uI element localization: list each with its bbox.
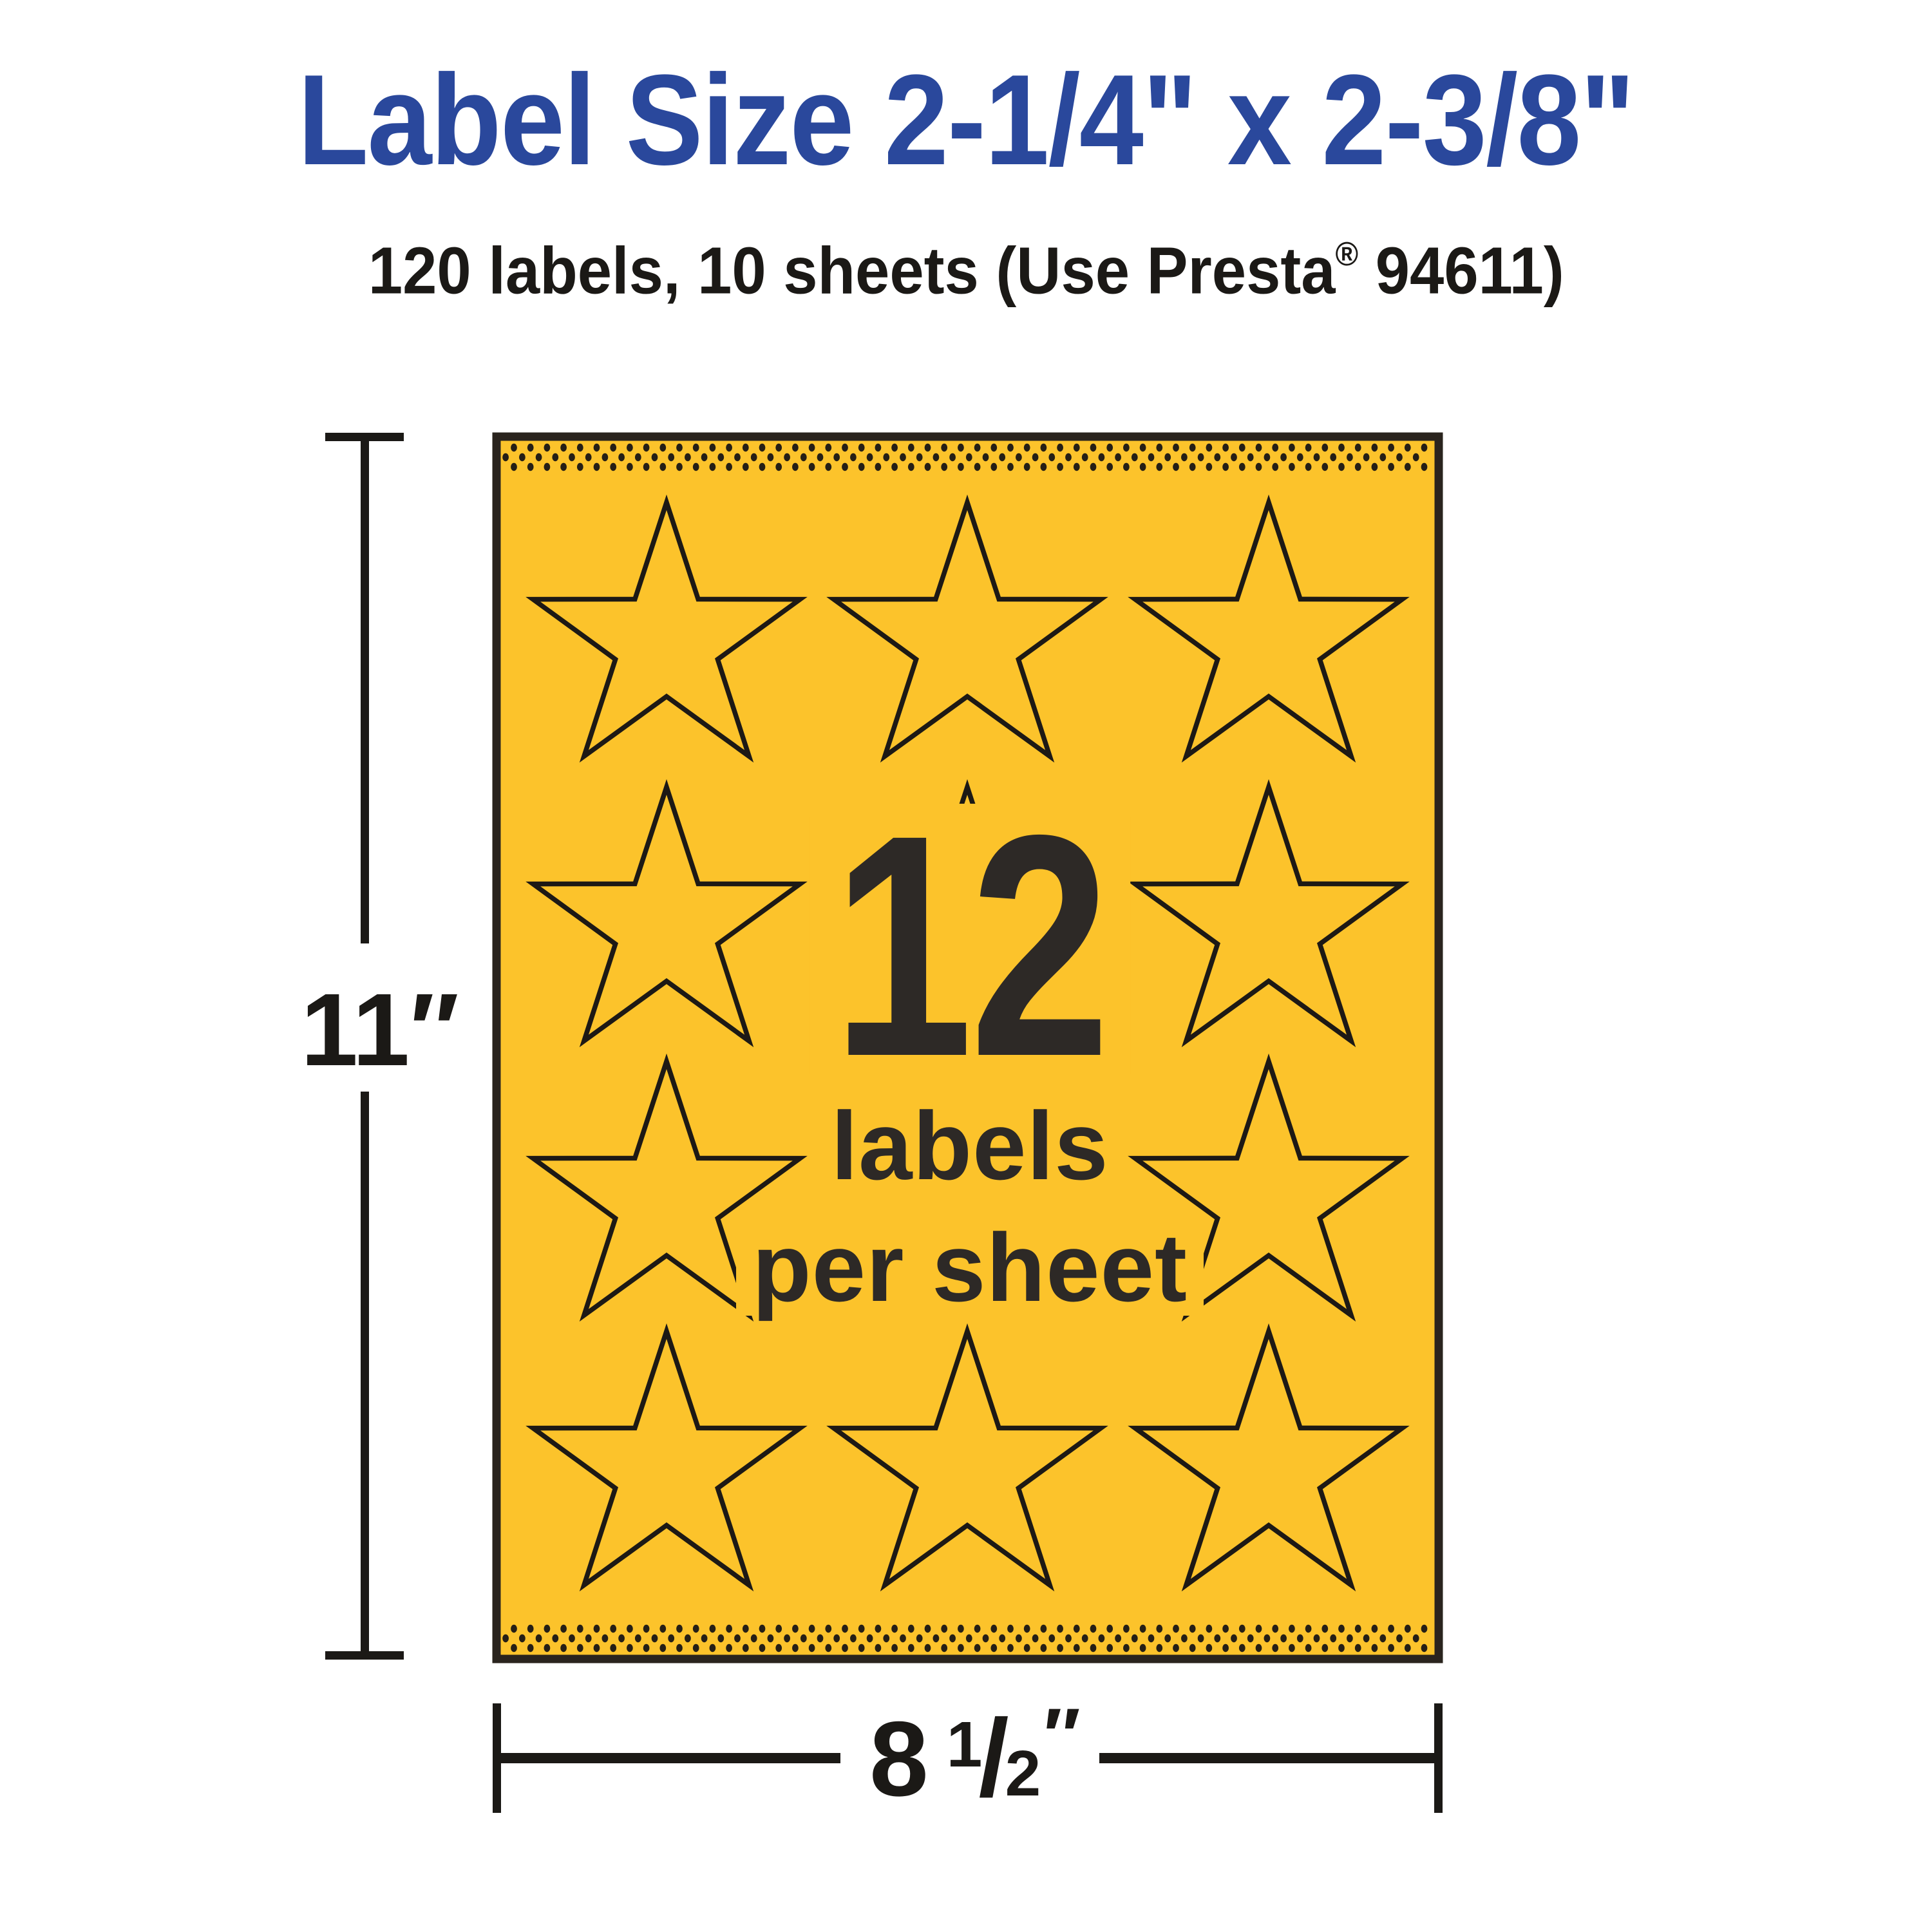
perforation-dot <box>825 444 831 451</box>
perforation-dot <box>1065 453 1072 461</box>
perforation-dot <box>602 453 609 461</box>
perforation-dot <box>800 453 807 461</box>
perforation-dot <box>569 453 575 461</box>
perforation-dot <box>693 463 699 471</box>
perforation-dot <box>743 463 749 471</box>
perforation-dot <box>726 1625 732 1633</box>
perforation-dot <box>1164 453 1171 461</box>
perforation-dot <box>693 1644 699 1652</box>
perforation-dot <box>659 444 666 451</box>
perforation-dot <box>858 1644 865 1652</box>
perforation-dot <box>1421 463 1428 471</box>
perforation-dot <box>1297 453 1303 461</box>
perforation-dot <box>1206 1644 1213 1652</box>
perforation-dot <box>751 1634 757 1642</box>
perforation-dot <box>1355 463 1361 471</box>
perforation-dot <box>1048 1634 1055 1642</box>
perforation-dot <box>635 1634 641 1642</box>
perforation-dot <box>1222 444 1229 451</box>
perforation-dot <box>833 453 840 461</box>
perforation-dot <box>659 1625 666 1633</box>
perforation-dot <box>1198 453 1204 461</box>
perforation-dot <box>1090 1644 1097 1652</box>
perforation-dot <box>759 1644 766 1652</box>
perforation-dot <box>1321 1644 1328 1652</box>
perforation-dot <box>759 463 766 471</box>
perforation-dot <box>817 1634 824 1642</box>
perforation-dot <box>676 1625 683 1633</box>
perforation-dot <box>1140 1644 1146 1652</box>
width-dimension-label: 81/2″ <box>869 1710 1081 1822</box>
perforation-dot <box>1231 1634 1237 1642</box>
perforation-dot <box>974 444 981 451</box>
width-dimension-line-right <box>1099 1753 1439 1763</box>
perforation-dot <box>1164 1634 1171 1642</box>
perforation-dot <box>1305 1644 1312 1652</box>
perforation-dot <box>552 453 558 461</box>
perforation-dot <box>1007 1625 1014 1633</box>
perforation-dot <box>1074 444 1080 451</box>
perforation-dot <box>1123 1625 1130 1633</box>
perforation-dot <box>717 1634 724 1642</box>
perforation-dot <box>1247 1634 1254 1642</box>
perforation-dot <box>544 444 551 451</box>
perforation-dot <box>1024 463 1030 471</box>
perforation-dot <box>908 1625 914 1633</box>
perforation-dot <box>710 1625 716 1633</box>
perforation-dot <box>1372 444 1378 451</box>
perforation-dot <box>1388 463 1394 471</box>
width-fraction-numerator: 1 <box>947 1709 983 1781</box>
perforation-dot <box>1156 1625 1162 1633</box>
perforation-dot <box>1222 1625 1229 1633</box>
perforation-dot <box>1379 1634 1386 1642</box>
product-diagram: Label Size 2-1/4" x 2-3/8" 120 labels, 1… <box>0 0 1932 1932</box>
perforation-dot <box>552 1634 558 1642</box>
width-dimension-right-cap <box>1434 1703 1443 1813</box>
perforation-dot <box>585 453 592 461</box>
perforation-dot <box>569 1634 575 1642</box>
labels-per-sheet-count: 12 <box>810 817 1130 1074</box>
height-dimension-bottom-cap <box>325 1651 404 1660</box>
perforation-dot <box>544 1625 551 1633</box>
perforation-dot <box>1379 453 1386 461</box>
perforation-dot <box>560 444 567 451</box>
perforation-dot <box>1007 1644 1014 1652</box>
perforation-dot <box>610 463 616 471</box>
perforation-dot <box>1305 1625 1312 1633</box>
perforation-dot <box>1181 1634 1188 1642</box>
perforation-dot <box>792 1644 799 1652</box>
perforation-dot <box>1256 444 1262 451</box>
height-dimension-line-lower <box>361 1092 369 1659</box>
perforation-dot <box>1106 1625 1113 1633</box>
perforation-dot <box>610 444 616 451</box>
perforation-dot <box>1305 463 1312 471</box>
perforation-dot <box>1321 444 1328 451</box>
perforation-dot <box>1123 463 1130 471</box>
perforation-dot <box>594 1625 600 1633</box>
perforation-dot <box>825 1644 831 1652</box>
perforation-dot <box>1189 1625 1196 1633</box>
perforation-dot <box>1421 1625 1428 1633</box>
per-sheet-words: per sheet <box>736 1219 1204 1316</box>
perforation-dot <box>1355 1625 1361 1633</box>
perforation-dot <box>643 1644 650 1652</box>
perforation-dot <box>710 444 716 451</box>
perforation-dot <box>759 444 766 451</box>
perforation-dot <box>1347 1634 1353 1642</box>
perforation-dot <box>958 444 964 451</box>
perforation-dot <box>1106 463 1113 471</box>
perforation-dot <box>1421 444 1428 451</box>
perforation-dot <box>792 444 799 451</box>
perforation-dot <box>1264 1634 1271 1642</box>
perforation-dot <box>1289 444 1295 451</box>
perforation-dot <box>867 1634 873 1642</box>
perforation-dot <box>775 444 782 451</box>
labels-word: labels <box>815 1097 1124 1194</box>
perforation-dot <box>1396 1634 1403 1642</box>
perforation-dot <box>833 1634 840 1642</box>
perforation-dot <box>908 1644 914 1652</box>
perforation-dot <box>1090 463 1097 471</box>
perforation-dot <box>1156 444 1162 451</box>
perforation-dot <box>1372 1625 1378 1633</box>
perforation-dot <box>734 453 741 461</box>
perforation-dot <box>1173 1644 1179 1652</box>
perforation-dot <box>1396 453 1403 461</box>
perforation-dot <box>974 463 981 471</box>
perforation-dot <box>1314 1634 1320 1642</box>
width-inch-mark: ″ <box>1043 1692 1080 1779</box>
perforation-dot <box>602 1634 609 1642</box>
perforation-dot <box>1388 1644 1394 1652</box>
perforation-dot <box>809 1625 815 1633</box>
perforation-dot <box>817 453 824 461</box>
perforation-dot <box>701 453 708 461</box>
perforation-dot <box>1041 444 1047 451</box>
perforation-dot <box>1347 453 1353 461</box>
perforation-dot <box>809 463 815 471</box>
perforation-dot <box>527 463 534 471</box>
perforation-dot <box>883 1634 889 1642</box>
perforation-dot <box>511 1625 517 1633</box>
perforation-dot <box>925 1644 931 1652</box>
perforation-dot <box>693 1625 699 1633</box>
perforation-dot <box>1181 453 1188 461</box>
perforation-dot <box>536 453 542 461</box>
perforation-dot <box>784 1634 790 1642</box>
perforation-dot <box>842 1644 848 1652</box>
perforation-dot <box>519 453 526 461</box>
perforation-dot <box>775 1625 782 1633</box>
perforation-dot <box>1413 1634 1419 1642</box>
perforation-dot <box>974 1644 981 1652</box>
perforation-dot <box>1041 1644 1047 1652</box>
perforation-dot <box>974 1625 981 1633</box>
perforation-dot <box>1007 444 1014 451</box>
perforation-dot <box>1189 1644 1196 1652</box>
perforation-dot <box>784 453 790 461</box>
perforation-dot <box>941 1625 947 1633</box>
perforation-dot <box>527 444 534 451</box>
perforation-dot <box>577 463 583 471</box>
perforation-dot <box>858 1625 865 1633</box>
perforation-dot <box>726 444 732 451</box>
perforation-dot <box>519 1634 526 1642</box>
perforation-dot <box>652 1634 658 1642</box>
perforation-dot <box>1189 444 1196 451</box>
perforation-dot <box>1115 1634 1121 1642</box>
perforation-dot <box>743 444 749 451</box>
perforation-dot <box>825 1625 831 1633</box>
perforation-dot <box>966 1634 972 1642</box>
perforation-dot <box>743 1644 749 1652</box>
perforation-dot <box>1115 453 1121 461</box>
perforation-dot <box>875 444 882 451</box>
perforation-dot <box>734 1634 741 1642</box>
perforation-dot <box>618 1634 625 1642</box>
perforation-dot <box>1057 444 1063 451</box>
perforation-dot <box>610 1625 616 1633</box>
perforation-dot <box>1289 463 1295 471</box>
perforation-dot <box>999 453 1005 461</box>
perforation-dot <box>1082 453 1088 461</box>
perforation-dot <box>891 1625 898 1633</box>
perforation-dot <box>1074 1625 1080 1633</box>
perforation-dot <box>958 463 964 471</box>
perforation-dot <box>1057 463 1063 471</box>
perforation-dot <box>560 1625 567 1633</box>
perforation-dot <box>1231 453 1237 461</box>
perforation-dot <box>594 463 600 471</box>
perforation-dot <box>1099 1634 1105 1642</box>
perforation-dot <box>983 1634 989 1642</box>
perforation-dot <box>1239 1625 1245 1633</box>
perforation-dot <box>1041 463 1047 471</box>
perforation-dot <box>1148 453 1155 461</box>
perforation-dot <box>1272 1625 1278 1633</box>
perforation-dot <box>1256 463 1262 471</box>
perforation-dot <box>891 444 898 451</box>
perforation-dot <box>1099 453 1105 461</box>
perforation-dot <box>768 1634 774 1642</box>
perforation-dot <box>891 1644 898 1652</box>
perforation-dot <box>627 1644 633 1652</box>
perforation-dot <box>1024 1644 1030 1652</box>
perforation-dot <box>1173 463 1179 471</box>
perforation-dot <box>875 463 882 471</box>
perforation-dot <box>1032 1634 1039 1642</box>
perforation-dot <box>1024 1625 1030 1633</box>
perforation-dot <box>1140 463 1146 471</box>
perforation-dot <box>585 1634 592 1642</box>
perforation-dot <box>1016 453 1022 461</box>
perforation-dot <box>916 1634 923 1642</box>
perforation-dot <box>1330 1634 1336 1642</box>
perforation-dot <box>900 1634 906 1642</box>
perforation-dot <box>1140 1625 1146 1633</box>
perforation-dot <box>1057 1625 1063 1633</box>
perforation-dot <box>544 463 551 471</box>
perforation-dot <box>883 453 889 461</box>
perforation-dot <box>1363 1634 1370 1642</box>
perforation-dot <box>1123 1644 1130 1652</box>
perforation-dot <box>1173 1625 1179 1633</box>
perforation-dot <box>1413 453 1419 461</box>
perforation-dot <box>850 1634 857 1642</box>
perforation-dot <box>1330 453 1336 461</box>
perforation-dot <box>560 463 567 471</box>
perforation-dot <box>1338 444 1345 451</box>
perforation-dot <box>659 1644 666 1652</box>
perforation-dot <box>610 1644 616 1652</box>
perforation-dot <box>668 1634 674 1642</box>
perforation-dot <box>1222 1644 1229 1652</box>
perforation-dot <box>1206 463 1213 471</box>
perforation-dot <box>643 463 650 471</box>
perforation-dot <box>759 1625 766 1633</box>
perforation-dot <box>941 1644 947 1652</box>
perforation-dot <box>685 453 691 461</box>
perforation-dot <box>1189 463 1196 471</box>
perforation-dot <box>560 1644 567 1652</box>
perforation-dot <box>1355 1644 1361 1652</box>
width-fraction-slash: / <box>978 1697 1009 1819</box>
perforation-dot <box>511 463 517 471</box>
perforation-dot <box>502 453 509 461</box>
perforation-dot <box>1421 1644 1428 1652</box>
perforation-dot <box>1355 444 1361 451</box>
perforation-dot <box>1272 444 1278 451</box>
perforation-dot <box>1214 1634 1220 1642</box>
perforation-dot <box>676 463 683 471</box>
perforation-dot <box>1280 1634 1287 1642</box>
perforation-dot <box>627 444 633 451</box>
perforation-dot <box>1090 444 1097 451</box>
perforation-dot <box>1074 463 1080 471</box>
perforation-dot <box>627 1625 633 1633</box>
perforation-dot <box>925 444 931 451</box>
perforation-dot <box>1338 1644 1345 1652</box>
perforation-dot <box>577 444 583 451</box>
perforation-dot <box>1206 444 1213 451</box>
perforation-dot <box>875 1644 882 1652</box>
perforation-dot <box>842 1625 848 1633</box>
perforation-dot <box>1239 1644 1245 1652</box>
perforation-dot <box>1214 453 1220 461</box>
perforation-dot <box>635 453 641 461</box>
perforation-dot <box>800 1634 807 1642</box>
perforation-dot <box>1106 1644 1113 1652</box>
perforation-dot <box>1372 463 1378 471</box>
perforation-dot <box>1321 1625 1328 1633</box>
perforation-dot <box>502 1634 509 1642</box>
perforation-dot <box>527 1644 534 1652</box>
perforation-dot <box>1239 463 1245 471</box>
perforation-dot <box>842 463 848 471</box>
perforation-dot <box>511 444 517 451</box>
perforation-dot <box>1222 463 1229 471</box>
perforation-dot <box>1007 463 1014 471</box>
perforation-dot <box>594 1644 600 1652</box>
perforation-dot <box>1132 453 1138 461</box>
perforation-dot <box>1272 1644 1278 1652</box>
perforation-dot <box>933 1634 940 1642</box>
perforation-dot <box>1305 444 1312 451</box>
perforation-dot <box>1140 444 1146 451</box>
perforation-dot <box>1106 444 1113 451</box>
perforation-dot <box>710 463 716 471</box>
perforation-dot <box>659 463 666 471</box>
perforation-dot <box>1148 1634 1155 1642</box>
perforation-dot <box>1065 1634 1072 1642</box>
perforation-dot <box>1198 1634 1204 1642</box>
perforation-dot <box>627 463 633 471</box>
perforation-dot <box>809 444 815 451</box>
height-dimension-label: 11″ <box>301 978 459 1081</box>
perforation-dot <box>1264 453 1271 461</box>
perforation-dot <box>958 1625 964 1633</box>
perforation-dot <box>792 1625 799 1633</box>
perforation-dot <box>1256 1644 1262 1652</box>
perforation-dot <box>1405 1644 1411 1652</box>
perforation-dot <box>850 453 857 461</box>
perforation-dot <box>1156 1644 1162 1652</box>
perforation-dot <box>701 1634 708 1642</box>
perforation-dot <box>1024 444 1030 451</box>
perforation-dot <box>941 463 947 471</box>
perforation-dot <box>792 463 799 471</box>
perforation-dot <box>1314 453 1320 461</box>
perforation-dot <box>867 453 873 461</box>
perforation-dot <box>717 453 724 461</box>
perforation-dot <box>966 453 972 461</box>
perforation-dot <box>1041 1625 1047 1633</box>
perforation-dot <box>1048 453 1055 461</box>
perforation-dot <box>710 1644 716 1652</box>
perforation-dot <box>842 444 848 451</box>
perforation-dot <box>825 463 831 471</box>
perforation-dot <box>668 453 674 461</box>
width-dimension-line-left <box>497 1753 840 1763</box>
perforation-dot <box>1173 444 1179 451</box>
perforation-dot <box>916 453 923 461</box>
perforation-dot <box>1247 453 1254 461</box>
perforation-dot <box>990 1644 997 1652</box>
perforation-dot <box>1289 1644 1295 1652</box>
perforation-dot <box>809 1644 815 1652</box>
perforation-dot <box>1405 444 1411 451</box>
perforation-dot <box>1082 1634 1088 1642</box>
perforation-dot <box>1057 1644 1063 1652</box>
perforation-dot <box>544 1644 551 1652</box>
perforation-dot <box>875 1625 882 1633</box>
perforation-dot <box>676 1644 683 1652</box>
perforation-dot <box>1239 444 1245 451</box>
perforation-dot <box>999 1634 1005 1642</box>
perforation-dot <box>990 444 997 451</box>
perforation-dot <box>652 453 658 461</box>
perforation-dot <box>1338 463 1345 471</box>
perforation-dot <box>577 1644 583 1652</box>
perforation-dot <box>933 453 940 461</box>
perforation-dot <box>1363 453 1370 461</box>
perforation-dot <box>775 463 782 471</box>
perforation-dot <box>891 463 898 471</box>
height-dimension-line-upper <box>361 437 369 943</box>
